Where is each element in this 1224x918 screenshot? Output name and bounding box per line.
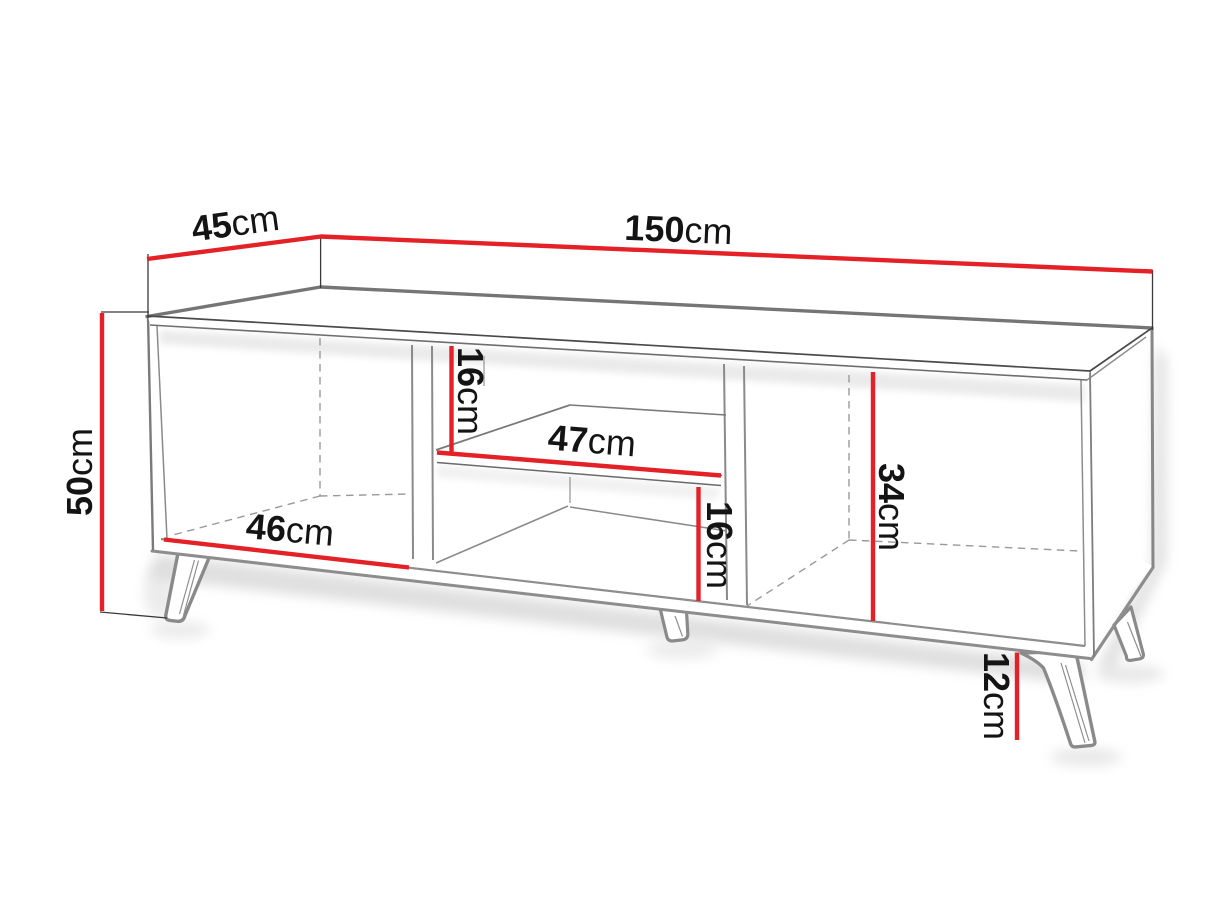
svg-text:47cm: 47cm (546, 417, 637, 465)
svg-text:16cm: 16cm (450, 347, 491, 435)
svg-text:150cm: 150cm (624, 207, 734, 252)
svg-text:46cm: 46cm (244, 505, 335, 554)
svg-text:34cm: 34cm (871, 463, 912, 551)
svg-text:16cm: 16cm (699, 501, 740, 589)
svg-text:12cm: 12cm (976, 652, 1017, 740)
svg-text:50cm: 50cm (59, 428, 100, 516)
